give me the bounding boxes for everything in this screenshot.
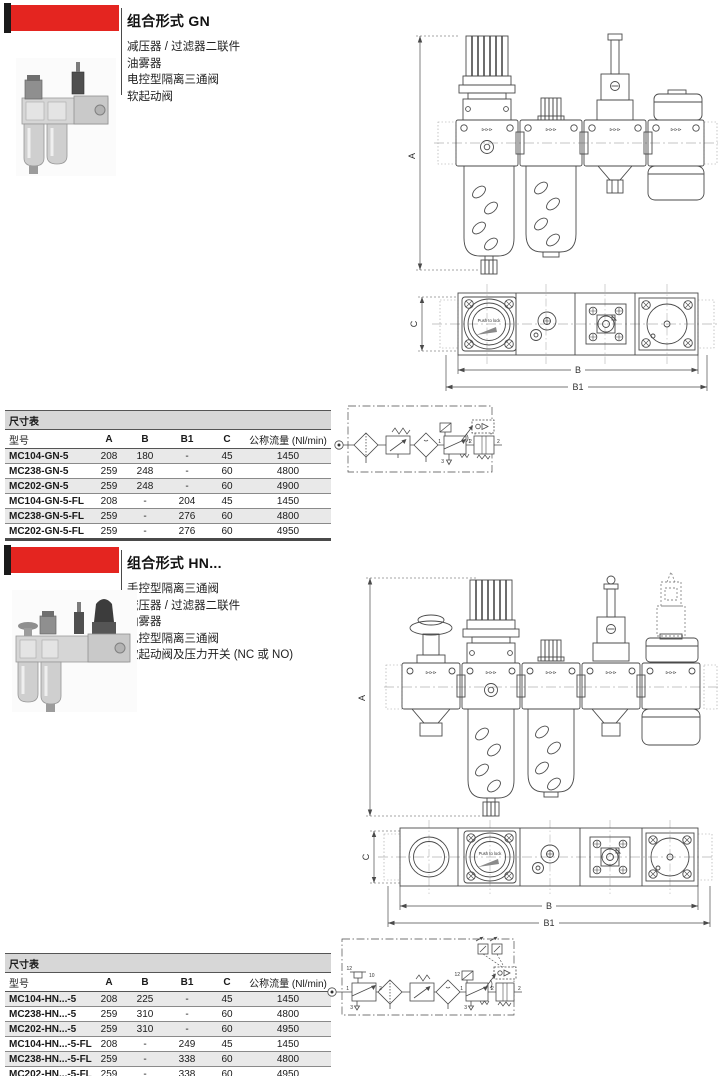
model-cell: MC238-HN...-5-FL bbox=[5, 1052, 93, 1067]
model-cell: MC202-GN-5-FL bbox=[5, 524, 93, 540]
value-cell: 259 bbox=[93, 1052, 125, 1067]
dim-a-label: A bbox=[408, 153, 417, 159]
value-cell: 259 bbox=[93, 479, 125, 494]
section-title-gn: 组合形式 GN bbox=[127, 11, 210, 31]
model-cell: MC202-HN...-5-FL bbox=[5, 1067, 93, 1076]
value-cell: - bbox=[125, 509, 165, 524]
value-cell: 1450 bbox=[245, 992, 331, 1007]
value-cell: - bbox=[125, 524, 165, 540]
value-cell: 4800 bbox=[245, 1052, 331, 1067]
flow-direction-mark: ⊳⊳⊳ bbox=[545, 127, 557, 132]
model-cell: MC104-GN-5-FL bbox=[5, 494, 93, 509]
table-row: MC238-HN...-5-FL259-338604800 bbox=[5, 1052, 331, 1067]
valve-drain-fitting bbox=[412, 709, 450, 736]
description-line: 电控型隔离三通阀 bbox=[127, 631, 293, 648]
column-header: B1 bbox=[165, 973, 209, 992]
value-cell: 259 bbox=[93, 464, 125, 479]
flow-direction-mark: ⊳⊳⊳ bbox=[605, 670, 617, 675]
soft-start-lower-body bbox=[642, 709, 700, 745]
column-header: 型号 bbox=[5, 973, 93, 992]
value-cell: 249 bbox=[165, 1037, 209, 1052]
description-line: 电控型隔离三通阀 bbox=[127, 72, 240, 89]
port-label-1: 1 bbox=[460, 986, 463, 992]
section-marker-black bbox=[4, 3, 11, 33]
value-cell: 338 bbox=[165, 1052, 209, 1067]
gn-circuit-diagram: 1 2 3 1 2 bbox=[332, 400, 504, 497]
column-header: A bbox=[93, 430, 125, 449]
pressure-switch-phantom bbox=[657, 572, 685, 636]
port-label-3: 3 bbox=[441, 459, 444, 465]
filter-symbol bbox=[354, 433, 378, 463]
regulator-knob bbox=[463, 580, 519, 697]
column-header: C bbox=[209, 973, 245, 992]
pressure-switch-symbols bbox=[476, 937, 504, 967]
description-line: 软起动阀及压力开关 (NC 或 NO) bbox=[127, 647, 293, 664]
soft-start-valve-cap bbox=[646, 634, 698, 662]
value-cell: 225 bbox=[125, 992, 165, 1007]
port-label-10: 10 bbox=[369, 973, 375, 979]
section-header-red-bar bbox=[11, 547, 119, 573]
value-cell: 4800 bbox=[245, 464, 331, 479]
value-cell: 45 bbox=[209, 449, 245, 464]
value-cell: 60 bbox=[209, 509, 245, 524]
value-cell: - bbox=[125, 1052, 165, 1067]
value-cell: - bbox=[125, 494, 165, 509]
regulator-knob bbox=[459, 36, 515, 154]
column-header: C bbox=[209, 430, 245, 449]
port-symbol bbox=[335, 441, 343, 449]
lubricator-cap bbox=[538, 640, 564, 661]
value-cell: 60 bbox=[209, 1052, 245, 1067]
value-cell: 4900 bbox=[245, 479, 331, 494]
hn-product-photo bbox=[12, 590, 137, 712]
description-line: 减压器 / 过滤器二联件 bbox=[127, 39, 240, 56]
hn-top-view-drawing: Push to lock C B B1 bbox=[358, 818, 724, 936]
model-cell: MC104-HN...-5 bbox=[5, 992, 93, 1007]
dim-a-label: A bbox=[358, 695, 367, 701]
lubricator-cap bbox=[538, 98, 564, 120]
flow-direction-mark: ⊳⊳⊳ bbox=[670, 127, 682, 132]
description-line: 油雾器 bbox=[127, 56, 240, 73]
value-cell: 208 bbox=[93, 494, 125, 509]
dim-c-label: C bbox=[409, 320, 419, 327]
port-label-2: 2 bbox=[379, 986, 382, 992]
section-description-hn: 手控型隔离三通阀 减压器 / 过滤器二联件 油雾器 电控型隔离三通阀 软起动阀及… bbox=[127, 581, 293, 664]
table-row: MC202-GN-5-FL259-276604950 bbox=[5, 524, 331, 540]
catalog-page: 组合形式 GN 减压器 / 过滤器二联件 油雾器 电控型隔离三通阀 软起动阀 bbox=[0, 0, 724, 1076]
table-caption: 尺寸表 bbox=[5, 410, 331, 430]
filter-bowl bbox=[468, 709, 514, 816]
flow-direction-mark: ⊳⊳⊳ bbox=[665, 670, 677, 675]
gn-top-view-drawing: Push to lock C B B1 bbox=[406, 282, 724, 400]
value-cell: 259 bbox=[93, 1022, 125, 1037]
value-cell: 259 bbox=[93, 509, 125, 524]
flow-direction-mark: ⊳⊳⊳ bbox=[481, 127, 493, 132]
value-cell: - bbox=[165, 449, 209, 464]
section-header-red-bar bbox=[11, 5, 119, 31]
regulator-symbol bbox=[386, 428, 410, 458]
value-cell: - bbox=[125, 1037, 165, 1052]
value-cell: - bbox=[125, 1067, 165, 1076]
table-header-row: 型号ABB1C公称流量 (Nl/min) bbox=[5, 973, 331, 992]
value-cell: 4950 bbox=[245, 1067, 331, 1076]
value-cell: 60 bbox=[209, 1007, 245, 1022]
model-cell: MC238-GN-5-FL bbox=[5, 509, 93, 524]
port-label-1: 1 bbox=[346, 986, 349, 992]
column-header: B bbox=[125, 430, 165, 449]
value-cell: - bbox=[165, 1022, 209, 1037]
valve-drain-fitting bbox=[598, 166, 632, 193]
hn-front-view-drawing: ⊳⊳⊳ ⊳⊳⊳ ⊳⊳⊳ ⊳⊳⊳ ⊳⊳⊳ bbox=[358, 568, 722, 828]
model-cell: MC238-HN...-5 bbox=[5, 1007, 93, 1022]
value-cell: 60 bbox=[209, 479, 245, 494]
column-header: 公称流量 (Nl/min) bbox=[245, 430, 331, 449]
soft-start-lower-body bbox=[648, 166, 704, 200]
table-row: MC104-HN...-5-FL208-249451450 bbox=[5, 1037, 331, 1052]
size-table-gn: 型号ABB1C公称流量 (Nl/min) MC104-GN-5208180-45… bbox=[5, 430, 331, 541]
model-cell: MC104-GN-5 bbox=[5, 449, 93, 464]
column-header: A bbox=[93, 973, 125, 992]
filter-symbol bbox=[378, 980, 402, 1009]
table-row: MC238-HN...-5259310-604800 bbox=[5, 1007, 331, 1022]
port-label-1: 1 bbox=[468, 439, 471, 445]
value-cell: 1450 bbox=[245, 494, 331, 509]
value-cell: 208 bbox=[93, 449, 125, 464]
column-header: B bbox=[125, 973, 165, 992]
flow-direction-mark: ⊳⊳⊳ bbox=[545, 670, 557, 675]
flow-direction-mark: ⊳⊳⊳ bbox=[425, 670, 437, 675]
port-label-2: 2 bbox=[518, 986, 521, 992]
table-caption: 尺寸表 bbox=[5, 953, 331, 973]
description-line: 油雾器 bbox=[127, 614, 293, 631]
model-cell: MC202-GN-5 bbox=[5, 479, 93, 494]
value-cell: 310 bbox=[125, 1022, 165, 1037]
lubricator-symbol bbox=[436, 980, 460, 1009]
port-label-12: 12 bbox=[346, 966, 352, 972]
model-cell: MC202-HN...-5 bbox=[5, 1022, 93, 1037]
value-cell: 208 bbox=[93, 1037, 125, 1052]
description-line: 软起动阀 bbox=[127, 89, 240, 106]
table-row: MC104-GN-5208180-451450 bbox=[5, 449, 331, 464]
gauge-text: Push to lock bbox=[478, 318, 502, 323]
section-title-hn: 组合形式 HN... bbox=[127, 553, 222, 573]
section-marker-black bbox=[4, 545, 11, 575]
port-bosses bbox=[531, 312, 557, 341]
dimension-a bbox=[416, 36, 480, 270]
regulator-symbol bbox=[410, 975, 434, 1001]
gauge-text: Push to lock bbox=[479, 851, 503, 856]
gn-product-photo bbox=[16, 58, 116, 176]
table-row: MC202-GN-5259248-604900 bbox=[5, 479, 331, 494]
value-cell: 259 bbox=[93, 1007, 125, 1022]
title-rule bbox=[121, 8, 122, 95]
column-header: B1 bbox=[165, 430, 209, 449]
soft-start-valve-cap bbox=[654, 90, 702, 120]
port-label-3: 3 bbox=[350, 1005, 353, 1011]
table-row: MC238-GN-5259248-604800 bbox=[5, 464, 331, 479]
value-cell: 45 bbox=[209, 992, 245, 1007]
value-cell: 60 bbox=[209, 464, 245, 479]
lubricator-symbol bbox=[414, 433, 438, 462]
dim-b1-label: B1 bbox=[543, 918, 554, 928]
size-table-hn: 型号ABB1C公称流量 (Nl/min) MC104-HN...-5208225… bbox=[5, 973, 331, 1076]
value-cell: 204 bbox=[165, 494, 209, 509]
value-cell: 4950 bbox=[245, 524, 331, 540]
value-cell: 338 bbox=[165, 1067, 209, 1076]
value-cell: 208 bbox=[93, 992, 125, 1007]
dim-b-label: B bbox=[575, 365, 581, 375]
value-cell: 259 bbox=[93, 524, 125, 540]
port-label-2: 2 bbox=[497, 439, 500, 445]
manual-valve-button bbox=[410, 615, 452, 663]
value-cell: 45 bbox=[209, 1037, 245, 1052]
table-row: MC202-HN...-5259310-604950 bbox=[5, 1022, 331, 1037]
soft-start-valve-symbol bbox=[462, 420, 494, 459]
value-cell: 310 bbox=[125, 1007, 165, 1022]
filter-bowl bbox=[464, 166, 514, 274]
solenoid-valve bbox=[593, 576, 629, 661]
description-line: 手控型隔离三通阀 bbox=[127, 581, 293, 598]
value-cell: 1450 bbox=[245, 449, 331, 464]
valve-drain-fitting bbox=[592, 709, 628, 736]
solenoid-valve-symbol bbox=[440, 423, 469, 465]
solenoid-valve bbox=[597, 34, 633, 120]
dim-c-label: C bbox=[361, 853, 371, 860]
table-row: MC104-GN-5-FL208-204451450 bbox=[5, 494, 331, 509]
port-label-1: 1 bbox=[438, 439, 441, 445]
port-symbol bbox=[328, 988, 336, 996]
gn-dimension-table: 尺寸表 型号ABB1C公称流量 (Nl/min) MC104-GN-520818… bbox=[5, 410, 331, 541]
lubricator-bowl bbox=[526, 166, 576, 257]
description-line: 减压器 / 过滤器二联件 bbox=[127, 598, 293, 615]
dim-b-label: B bbox=[546, 901, 552, 911]
value-cell: 45 bbox=[209, 494, 245, 509]
value-cell: - bbox=[165, 992, 209, 1007]
value-cell: 60 bbox=[209, 1022, 245, 1037]
value-cell: 4800 bbox=[245, 1007, 331, 1022]
table-row: MC238-GN-5-FL259-276604800 bbox=[5, 509, 331, 524]
hn-dimension-table: 尺寸表 型号ABB1C公称流量 (Nl/min) MC104-HN...-520… bbox=[5, 953, 331, 1076]
table-row: MC104-HN...-5208225-451450 bbox=[5, 992, 331, 1007]
section-description-gn: 减压器 / 过滤器二联件 油雾器 电控型隔离三通阀 软起动阀 bbox=[127, 39, 240, 105]
value-cell: 180 bbox=[125, 449, 165, 464]
value-cell: 4800 bbox=[245, 509, 331, 524]
hn-circuit-diagram: 12 10 1 2 3 12 1 2 3 1 2 bbox=[324, 934, 526, 1042]
value-cell: 276 bbox=[165, 509, 209, 524]
model-cell: MC104-HN...-5-FL bbox=[5, 1037, 93, 1052]
table-row: MC202-HN...-5-FL259-338604950 bbox=[5, 1067, 331, 1076]
value-cell: 276 bbox=[165, 524, 209, 540]
value-cell: 1450 bbox=[245, 1037, 331, 1052]
table-header-row: 型号ABB1C公称流量 (Nl/min) bbox=[5, 430, 331, 449]
port-label-1: 1 bbox=[490, 986, 493, 992]
flow-direction-mark: ⊳⊳⊳ bbox=[485, 670, 497, 675]
value-cell: 4950 bbox=[245, 1022, 331, 1037]
value-cell: - bbox=[165, 464, 209, 479]
value-cell: 248 bbox=[125, 479, 165, 494]
value-cell: 248 bbox=[125, 464, 165, 479]
dim-b1-label: B1 bbox=[572, 382, 583, 392]
gn-front-view-drawing: ⊳⊳⊳ ⊳⊳⊳ ⊳⊳⊳ ⊳⊳⊳ bbox=[408, 26, 720, 282]
value-cell: - bbox=[165, 479, 209, 494]
value-cell: 60 bbox=[209, 524, 245, 540]
model-cell: MC238-GN-5 bbox=[5, 464, 93, 479]
port-bosses bbox=[533, 845, 560, 874]
port-label-12: 12 bbox=[454, 972, 460, 978]
value-cell: 60 bbox=[209, 1067, 245, 1076]
column-header: 型号 bbox=[5, 430, 93, 449]
port-label-3: 3 bbox=[464, 1005, 467, 1011]
lubricator-bowl bbox=[528, 709, 574, 797]
column-header: 公称流量 (Nl/min) bbox=[245, 973, 331, 992]
value-cell: 259 bbox=[93, 1067, 125, 1076]
flow-direction-mark: ⊳⊳⊳ bbox=[609, 127, 621, 132]
value-cell: - bbox=[165, 1007, 209, 1022]
